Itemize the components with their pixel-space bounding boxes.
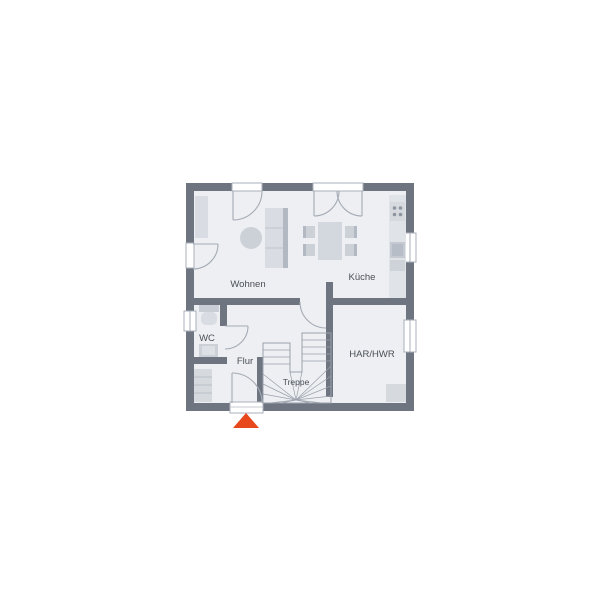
entrance-arrow-icon [233,413,259,428]
kitchen-counter [389,195,406,298]
room-label-kueche: Küche [349,272,376,283]
room-label-har-hwr: HAR/HWR [349,349,395,360]
dining-table [318,222,342,260]
terrace-door-opening [232,183,262,191]
hall-wardrobe [194,369,212,402]
toilet-bowl [201,312,217,325]
room-label-wc: WC [199,333,215,344]
room-label-flur: Flur [237,356,253,367]
room-label-treppe: Treppe [283,377,310,387]
cooktop [390,202,405,221]
sideboard [195,196,208,238]
double-door-opening [313,183,363,191]
entrance-threshold [230,402,263,413]
floor-plan-page: Wohnen Küche WC Flur Treppe HAR/HWR [0,0,600,600]
har-hwr-window [404,320,416,352]
room-label-wohnen: Wohnen [230,279,265,290]
sofa [265,208,288,268]
floor-plan-canvas: Wohnen Küche WC Flur Treppe HAR/HWR [0,0,600,600]
kitchen-appliance [390,260,405,271]
coffee-table [240,227,262,249]
toilet-tank [199,305,219,312]
wc-window [184,311,196,331]
side-door-opening [186,243,194,268]
utility-appliance [386,384,406,402]
